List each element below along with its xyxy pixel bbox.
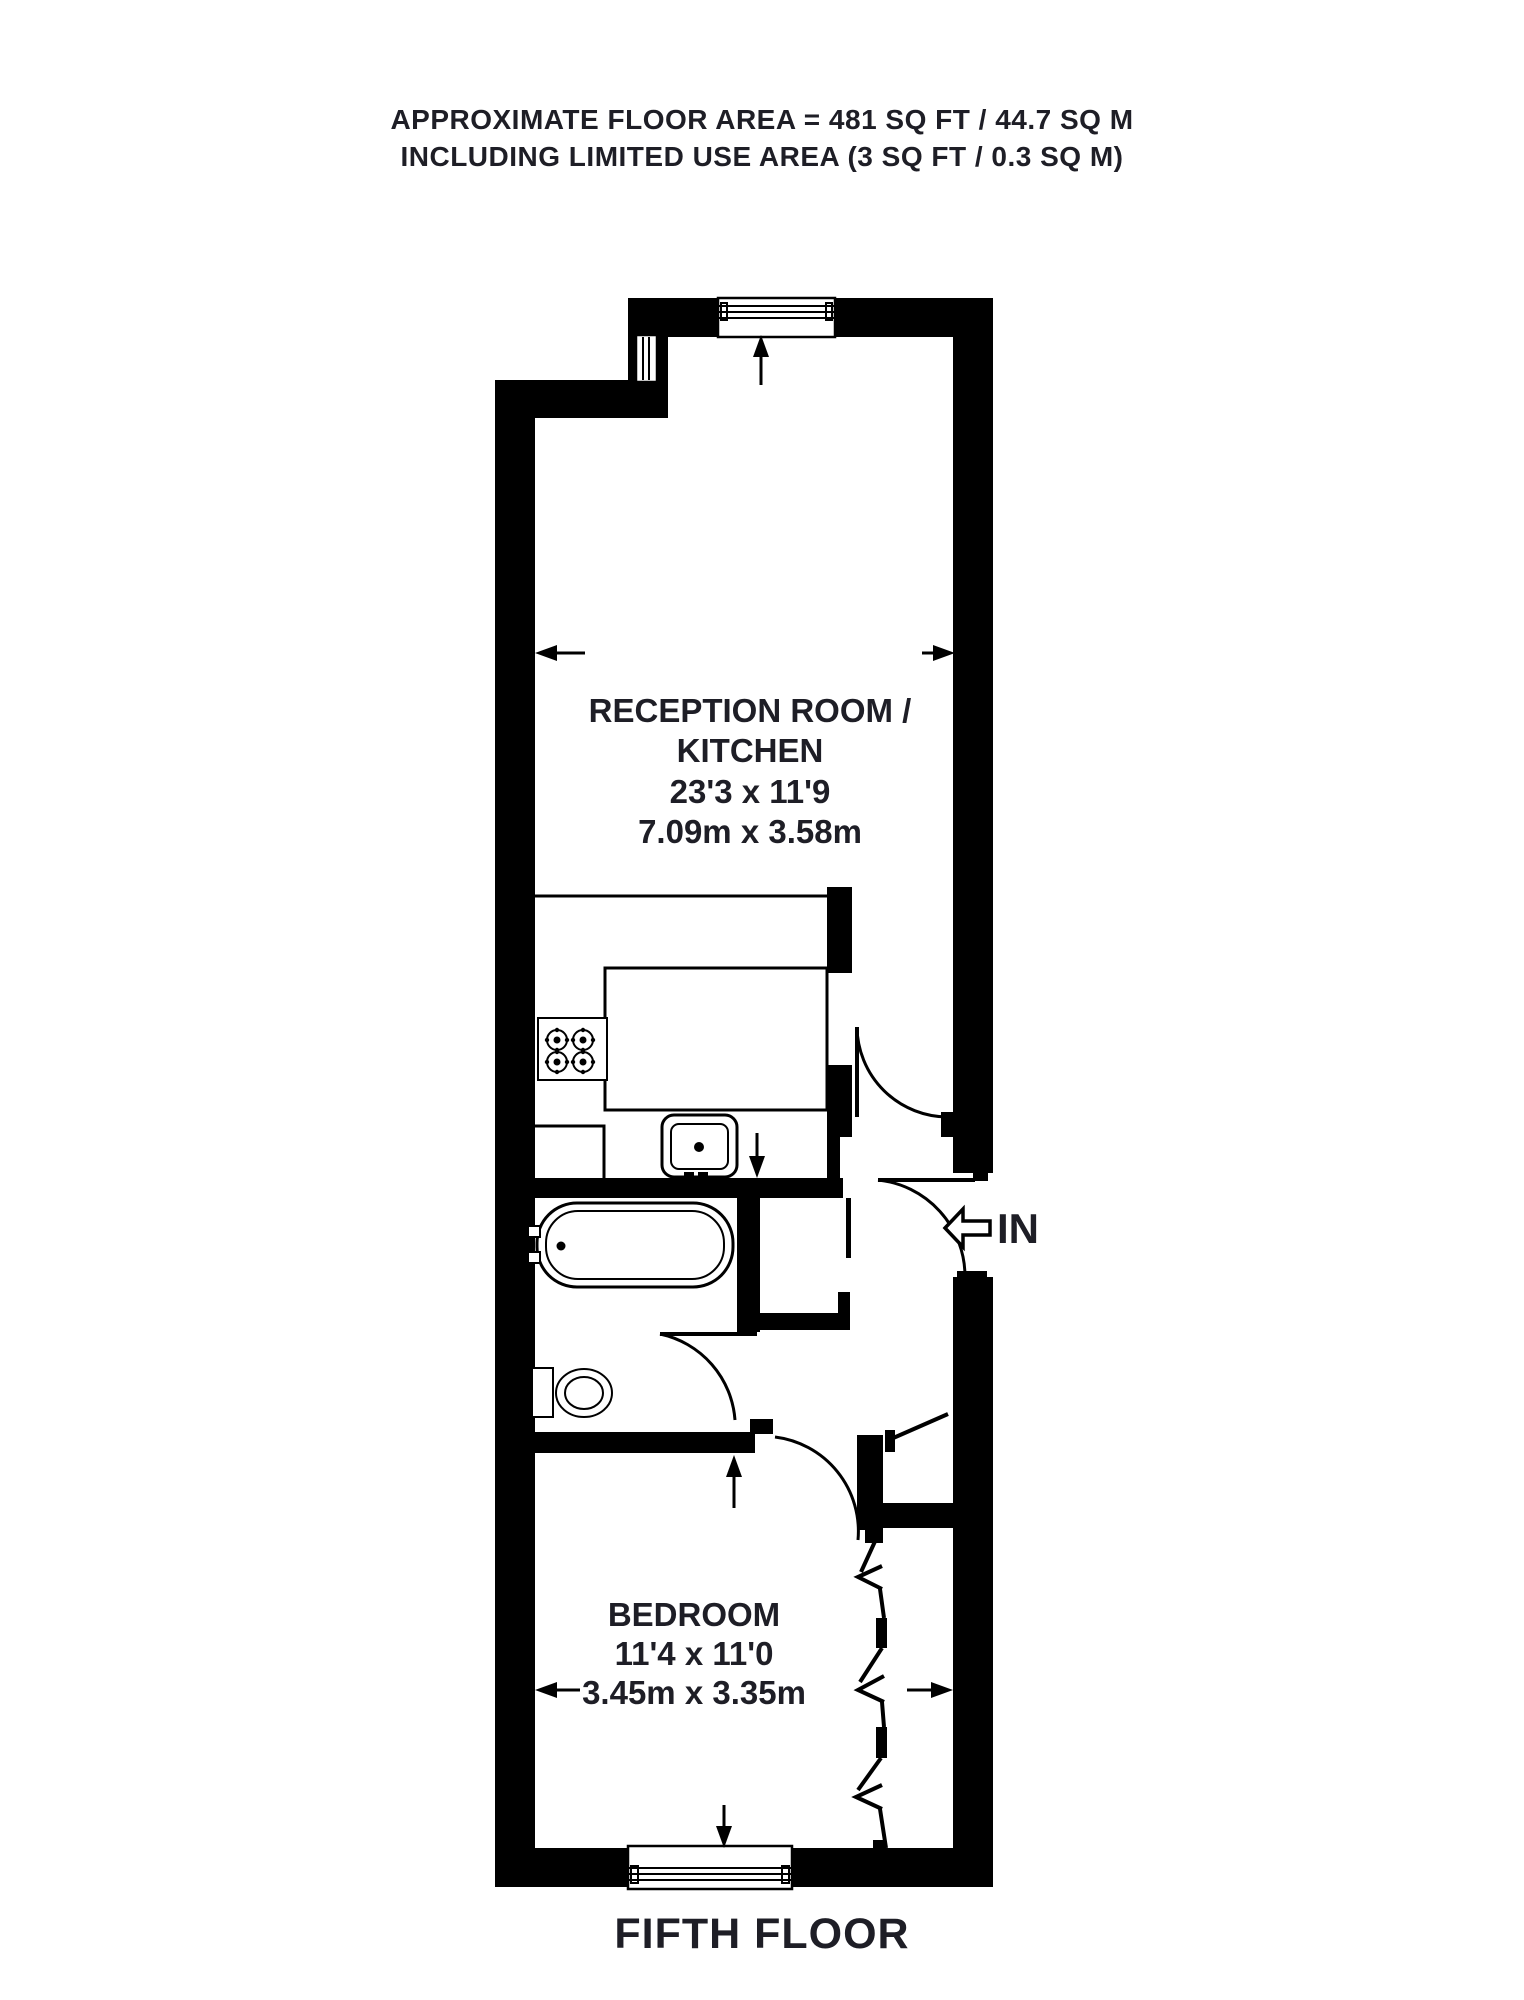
stove-icon — [538, 1018, 607, 1080]
bedroom-dimensions-metric: 3.45m x 3.35m — [582, 1674, 806, 1711]
window-top-icon — [718, 298, 835, 337]
floor-caption: FIFTH FLOOR — [614, 1910, 909, 1958]
window-bottom-icon — [628, 1846, 792, 1889]
bedroom-label: BEDROOM 11'4 x 11'0 3.45m x 3.35m — [582, 1596, 806, 1711]
bedroom-dimensions-imperial: 11'4 x 11'0 — [615, 1635, 774, 1672]
window-left-icon — [636, 335, 657, 382]
reception-name-line1: RECEPTION ROOM / — [589, 692, 912, 729]
bedroom-name: BEDROOM — [608, 1596, 780, 1633]
reception-dimensions-metric: 7.09m x 3.58m — [638, 813, 862, 850]
floor-plan: IN RECEPTION ROOM / KITCHEN 23'3 x 11'9 … — [0, 0, 1524, 2000]
bedroom-door-arc — [775, 1437, 858, 1540]
sink-icon — [662, 1115, 737, 1179]
kitchen-door-arc — [857, 1027, 948, 1117]
reception-room-label: RECEPTION ROOM / KITCHEN 23'3 x 11'9 7.0… — [589, 692, 912, 850]
entrance-label: IN — [997, 1205, 1039, 1252]
bathroom-door-arc — [660, 1334, 757, 1420]
toilet-icon — [532, 1368, 612, 1417]
zigzag-wall — [856, 1537, 887, 1850]
reception-dimensions-imperial: 23'3 x 11'9 — [670, 773, 831, 810]
entrance-in-arrow-icon — [945, 1209, 990, 1247]
bathtub-icon — [528, 1203, 733, 1287]
cupboard-door — [891, 1414, 948, 1439]
reception-name-line2: KITCHEN — [677, 732, 824, 769]
